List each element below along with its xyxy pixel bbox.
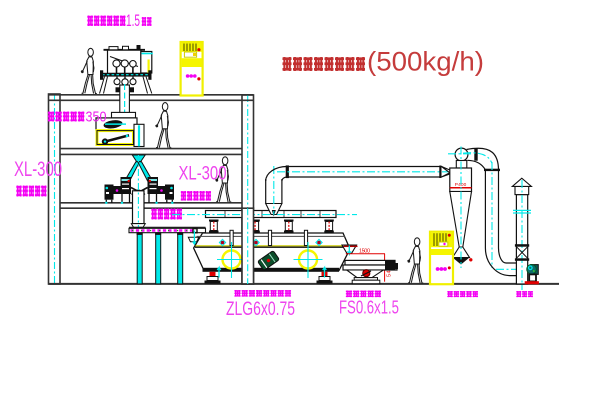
svg-text:350: 350 xyxy=(86,109,107,126)
svg-text:FS0.6x1.5: FS0.6x1.5 xyxy=(339,298,399,318)
svg-text:1.5: 1.5 xyxy=(126,11,140,30)
svg-text:1500: 1500 xyxy=(359,249,370,255)
svg-text:XL-300: XL-300 xyxy=(179,164,227,185)
svg-text:(500kg/h): (500kg/h) xyxy=(367,47,484,77)
svg-text:XL-300: XL-300 xyxy=(14,158,62,181)
svg-text:ZLG6x0.75: ZLG6x0.75 xyxy=(226,299,295,320)
